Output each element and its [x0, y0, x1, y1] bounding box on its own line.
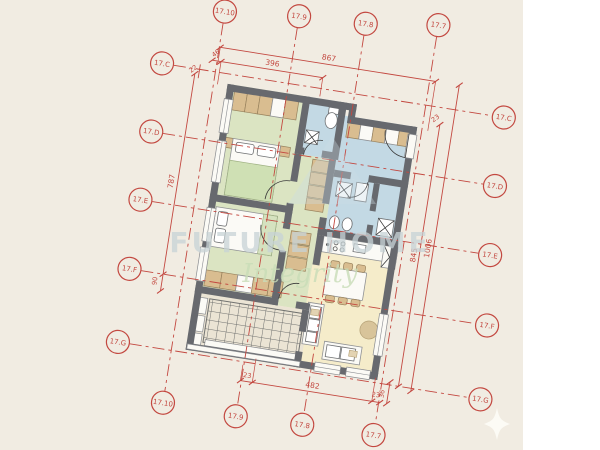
- floor-plan-drawing: 867 396 46 22 787 90 845 1006 23 23 482 …: [0, 0, 600, 450]
- chair: [325, 295, 335, 303]
- dim-left-lower: 90: [150, 276, 159, 285]
- dim-bottom-left: 23: [243, 371, 252, 380]
- scan-edge-strip: [523, 0, 600, 450]
- cushion: [349, 350, 358, 357]
- chair: [350, 299, 360, 307]
- dim-bottom-side: 36: [377, 389, 386, 398]
- watermark-tagline: Integrity: [241, 259, 358, 289]
- chair: [338, 297, 348, 305]
- floor-plan-screenshot: 867 396 46 22 787 90 845 1006 23 23 482 …: [0, 0, 600, 450]
- blanket: [224, 160, 277, 202]
- cushion: [311, 309, 320, 316]
- watermark-brand: FUTURE HOME: [169, 226, 430, 259]
